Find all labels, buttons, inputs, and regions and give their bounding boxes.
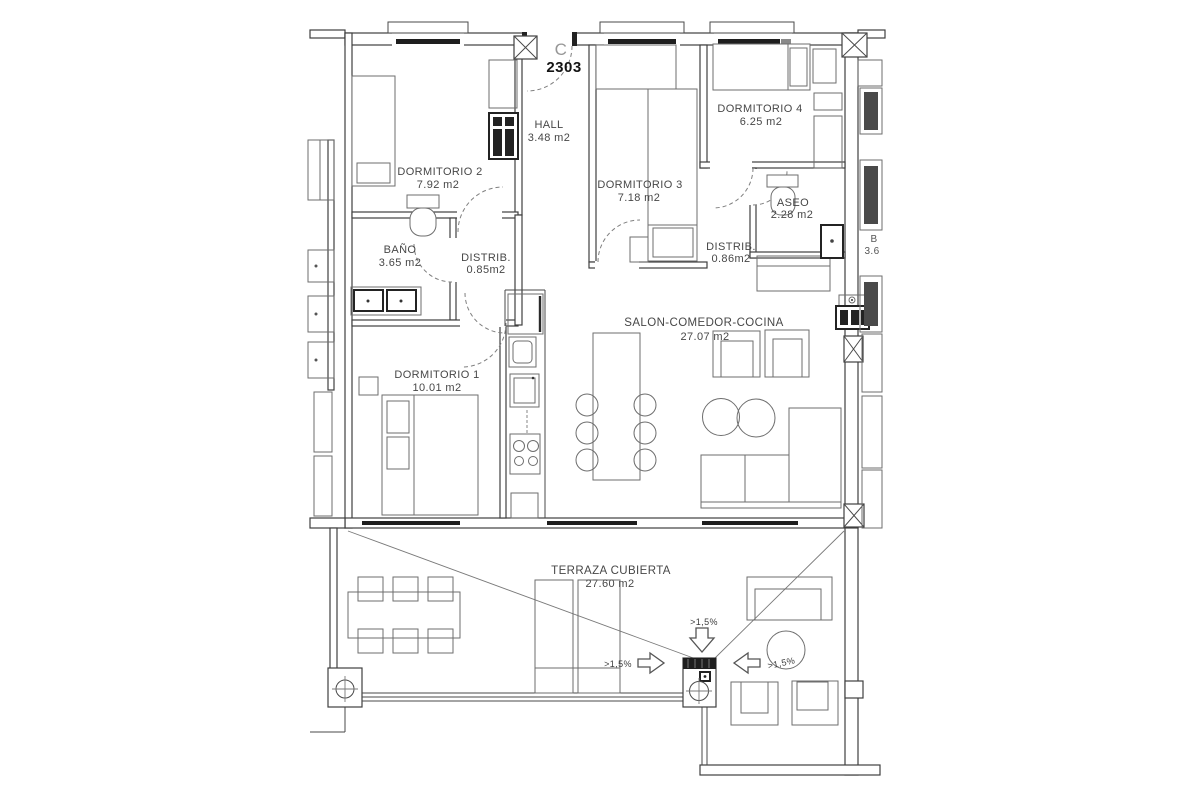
room-label-distrib1-area: 0.85m2 (466, 264, 505, 276)
coffee-table-icon (737, 399, 775, 437)
toilet-icon (407, 195, 439, 236)
dormitorio1-furniture (359, 377, 478, 515)
floor-plan-drawing: C 2303 HALL 3.48 m2 DORMITORIO 2 7.92 m2… (0, 0, 1200, 800)
fridge-icon (508, 294, 543, 334)
arrow-down-icon (690, 628, 714, 652)
terrace-column-drain (328, 668, 362, 707)
slope-label-down: >1,5% (690, 617, 718, 627)
column-icon (514, 36, 537, 59)
terrace-furniture (348, 577, 838, 725)
room-label-dormitorio3-area: 7.18 m2 (618, 192, 661, 204)
cabinet-icon (511, 493, 538, 518)
room-label-hall-area: 3.48 m2 (528, 132, 571, 144)
wardrobe-icon (814, 93, 842, 110)
sideboard-icon (757, 256, 830, 291)
arrow-left-icon (734, 653, 760, 673)
room-label-salon-area: 27.07 m2 (680, 331, 729, 343)
room-label-dormitorio1-area: 10.01 m2 (412, 382, 461, 394)
drain-box-icon (683, 658, 716, 707)
bed-icon (352, 76, 395, 186)
double-sink-icon (351, 287, 421, 315)
nightstand-icon (813, 49, 836, 83)
room-label-distrib2-name: DISTRIB. (706, 241, 756, 253)
bed-icon (648, 89, 697, 261)
arrow-right-icon (638, 653, 664, 673)
room-label-salon-name: SALON-COMEDOR-COCINA (624, 317, 783, 329)
sink-icon (509, 337, 536, 367)
cooktop-icon (510, 434, 540, 474)
terrace-post (845, 681, 863, 698)
room-label-terraza-area: 27.60 m2 (585, 578, 634, 590)
room-label-terraza-name: TERRAZA CUBIERTA (551, 565, 671, 577)
room-label-distrib2-area: 0.86m2 (711, 253, 750, 265)
outdoor-armchair-icon (731, 682, 778, 725)
planters-icon (535, 580, 620, 693)
bed-icon (382, 395, 478, 515)
room-label-aseo-area: 2.28 m2 (771, 209, 814, 221)
dormitorio3-furniture (596, 45, 697, 262)
floor-plan-page: C 2303 HALL 3.48 m2 DORMITORIO 2 7.92 m2… (0, 0, 1200, 800)
wardrobe-icon (814, 116, 842, 168)
room-label-hall-name: HALL (534, 119, 563, 131)
sofa-icon (701, 408, 841, 508)
dining-set-icon (576, 333, 656, 480)
armchair-icon (765, 330, 809, 377)
outdoor-armchair-icon (792, 681, 838, 725)
labels: C 2303 HALL 3.48 m2 DORMITORIO 2 7.92 m2… (379, 40, 880, 671)
wardrobe-icon (596, 45, 676, 89)
room-label-bano-name: BAÑO (384, 243, 417, 256)
bed-icon (713, 44, 810, 90)
unit-number: 2303 (546, 59, 581, 76)
outdoor-dining-icon (348, 577, 460, 653)
room-label-dormitorio1-name: DORMITORIO 1 (394, 369, 479, 381)
salon-furniture (576, 256, 869, 508)
sink-icon (821, 225, 843, 258)
room-label-distrib1-name: DISTRIB. (461, 252, 511, 264)
wardrobe-icon (489, 60, 517, 108)
room-label-dormitorio4-name: DORMITORIO 4 (717, 103, 802, 115)
nightstand-icon (359, 377, 378, 395)
neighbor-right-fragments (858, 60, 882, 528)
neighbor-unit-name: B (870, 234, 877, 245)
neighbor-unit-area: 3.6 (864, 246, 879, 257)
column-icon (844, 336, 863, 362)
coffee-table-icon (703, 399, 740, 436)
room-label-dormitorio2-name: DORMITORIO 2 (397, 166, 482, 178)
unit-letter: C (555, 40, 568, 59)
column-icon (842, 33, 867, 57)
washer-stack-icon (489, 113, 518, 159)
room-label-dormitorio4-area: 6.25 m2 (740, 116, 783, 128)
nightstand-icon (630, 237, 648, 262)
oven-icon (510, 374, 539, 407)
room-label-aseo-name: ASEO (777, 197, 809, 209)
room-label-dormitorio2-area: 7.92 m2 (417, 179, 460, 191)
column-icon (844, 504, 864, 527)
room-label-dormitorio3-name: DORMITORIO 3 (597, 179, 682, 191)
slope-label-right: >1,5% (604, 659, 632, 669)
room-label-bano-area: 3.65 m2 (379, 257, 422, 269)
